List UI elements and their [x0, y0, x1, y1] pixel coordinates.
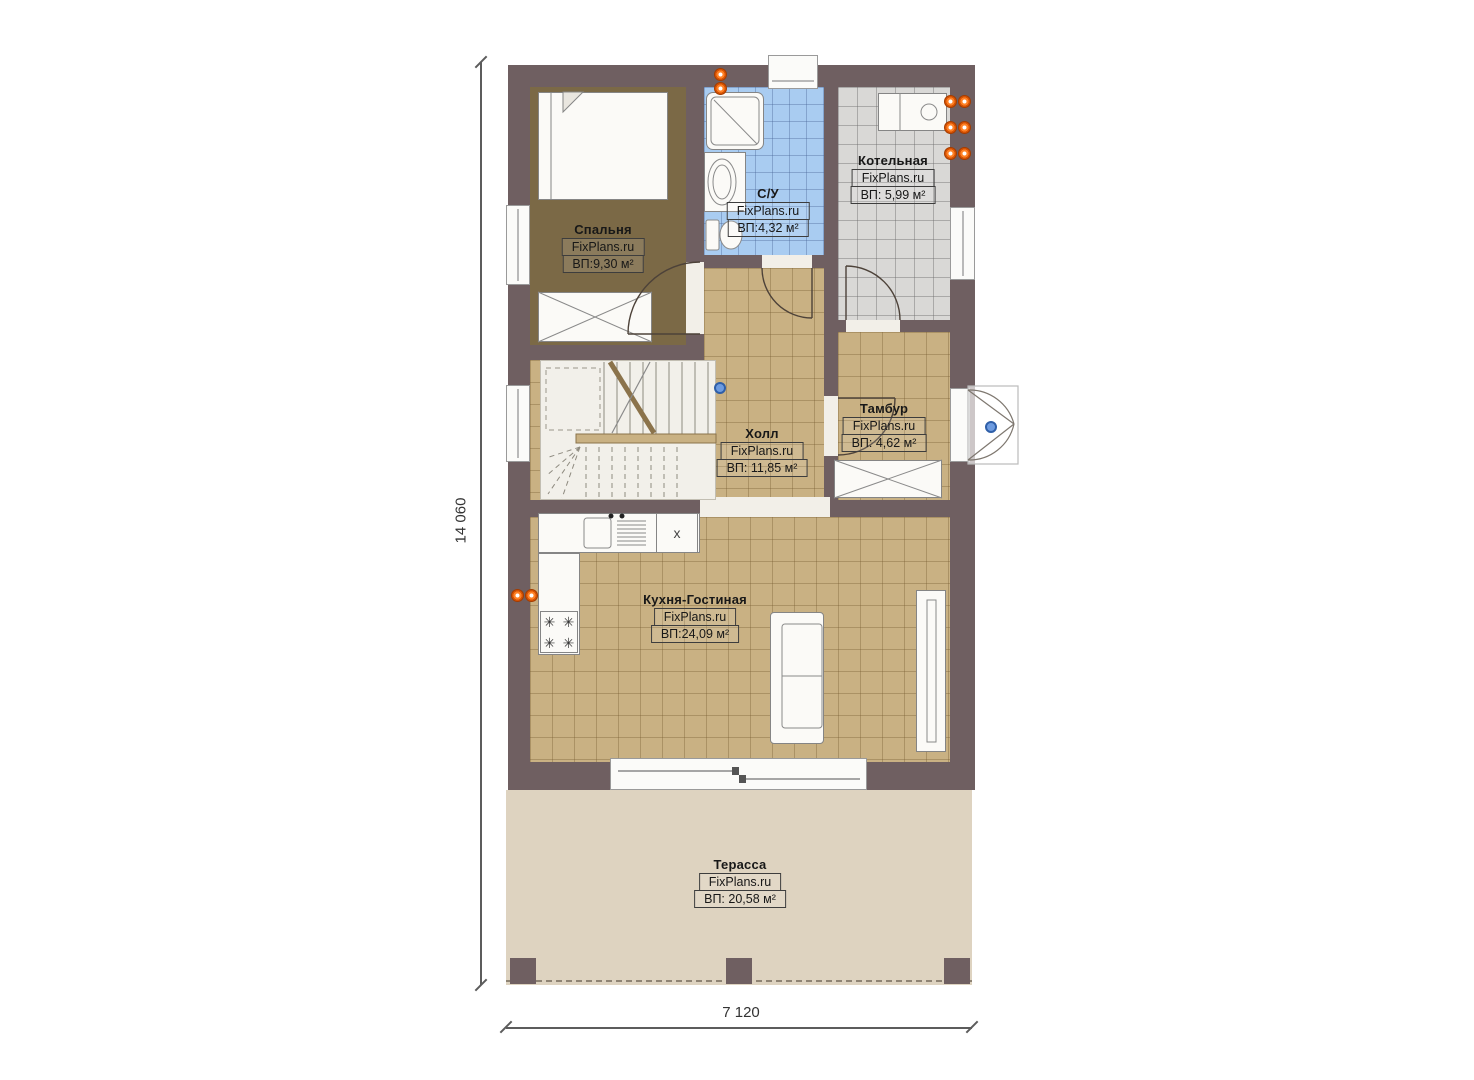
dimension-line-vertical [480, 62, 482, 985]
room-name: Терасса [714, 857, 767, 872]
room-brand: FixPlans.ru [852, 169, 935, 187]
room-name: Тамбур [860, 401, 908, 416]
hall-kitchen-opening [700, 497, 830, 517]
floor-plan-page: x ✳ ✳ ✳ ✳ [0, 0, 1474, 1080]
room-brand: FixPlans.ru [654, 608, 737, 626]
room-label-bathroom: С/У FixPlans.ru ВП:4,32 м² [727, 186, 810, 237]
window-glass-line [517, 209, 519, 281]
kitchen-vent-icon [511, 589, 538, 602]
boiler-vent-icon [944, 147, 971, 160]
window-glass-line [517, 389, 519, 458]
room-label-bedroom: Спальня FixPlans.ru ВП:9,30 м² [562, 222, 645, 273]
boiler-unit [878, 93, 947, 131]
burner-icon: ✳ [544, 615, 556, 629]
vent-dot-icon [944, 95, 957, 108]
room-label-hall: Холл FixPlans.ru ВП: 11,85 м² [717, 426, 808, 477]
vent-dot-icon [714, 82, 727, 95]
bathroom-door-gap [762, 255, 812, 268]
room-area: ВП:4,32 м² [727, 219, 808, 237]
stove-burners: ✳ ✳ ✳ ✳ [540, 611, 578, 653]
window-glass-line [962, 211, 964, 276]
room-label-kitchen-living: Кухня-Гостиная FixPlans.ru ВП:24,09 м² [643, 592, 747, 643]
room-brand: FixPlans.ru [699, 873, 782, 891]
vent-dot-icon [958, 95, 971, 108]
room-brand: FixPlans.ru [727, 202, 810, 220]
stair-window [506, 385, 530, 462]
burner-icon: ✳ [544, 636, 556, 650]
entrance-marker-dot [985, 421, 997, 433]
room-area: ВП: 4,62 м² [842, 434, 927, 452]
chimney-vent-icon [714, 68, 727, 95]
room-name: Холл [745, 426, 778, 441]
staircase-area [540, 360, 716, 500]
entrance-door-opening [950, 388, 970, 462]
vent-dot-icon [944, 121, 957, 134]
terrace-post [726, 958, 752, 984]
bedroom-window [506, 205, 530, 285]
vent-dot-icon [958, 121, 971, 134]
room-area: ВП:24,09 м² [651, 625, 739, 643]
room-label-boiler: Котельная FixPlans.ru ВП: 5,99 м² [851, 153, 936, 204]
vent-dot-icon [958, 147, 971, 160]
stair-marker-dot [714, 382, 726, 394]
terrace-post [944, 958, 970, 984]
window-glass-line [772, 80, 814, 82]
room-area: ВП:9,30 м² [562, 255, 643, 273]
bathroom-top-window [768, 55, 818, 89]
sofa [770, 612, 824, 744]
vent-dot-icon [525, 589, 538, 602]
room-area: ВП: 20,58 м² [694, 890, 786, 908]
vestibule-door-gap [824, 396, 838, 456]
boiler-vent-icon [944, 121, 971, 134]
kitchen-unit-letter: x [674, 525, 681, 541]
room-label-terrace: Терасса FixPlans.ru ВП: 20,58 м² [694, 857, 786, 908]
vent-dot-icon [511, 589, 524, 602]
room-brand: FixPlans.ru [562, 238, 645, 256]
dimension-label-height: 14 060 [452, 498, 469, 544]
bed [538, 92, 668, 200]
room-area: ВП: 5,99 м² [851, 186, 936, 204]
dimension-label-width: 7 120 [706, 1004, 776, 1021]
boiler-door-gap [846, 320, 900, 332]
bedroom-door-gap [686, 262, 704, 334]
boiler-window [950, 207, 975, 280]
burner-icon: ✳ [563, 615, 575, 629]
room-area: ВП: 11,85 м² [717, 459, 808, 477]
room-name: Котельная [858, 153, 928, 168]
shower [706, 92, 764, 150]
room-brand: FixPlans.ru [721, 442, 804, 460]
bedroom-wardrobe [538, 292, 652, 342]
vestibule-wardrobe [834, 460, 942, 498]
burner-icon: ✳ [563, 636, 575, 650]
boiler-vent-icon [944, 95, 971, 108]
room-name: С/У [757, 186, 779, 201]
vent-dot-icon [714, 68, 727, 81]
living-wall-unit [916, 590, 946, 752]
dimension-line-horizontal [506, 1027, 972, 1029]
terrace-post [510, 958, 536, 984]
room-name: Кухня-Гостиная [643, 592, 747, 607]
room-name: Спальня [574, 222, 632, 237]
room-brand: FixPlans.ru [843, 417, 926, 435]
vent-dot-icon [944, 147, 957, 160]
room-label-vestibule: Тамбур FixPlans.ru ВП: 4,62 м² [842, 401, 927, 452]
kitchen-appliance-unit: x [656, 513, 698, 553]
terrace-sliding-door [610, 758, 867, 790]
